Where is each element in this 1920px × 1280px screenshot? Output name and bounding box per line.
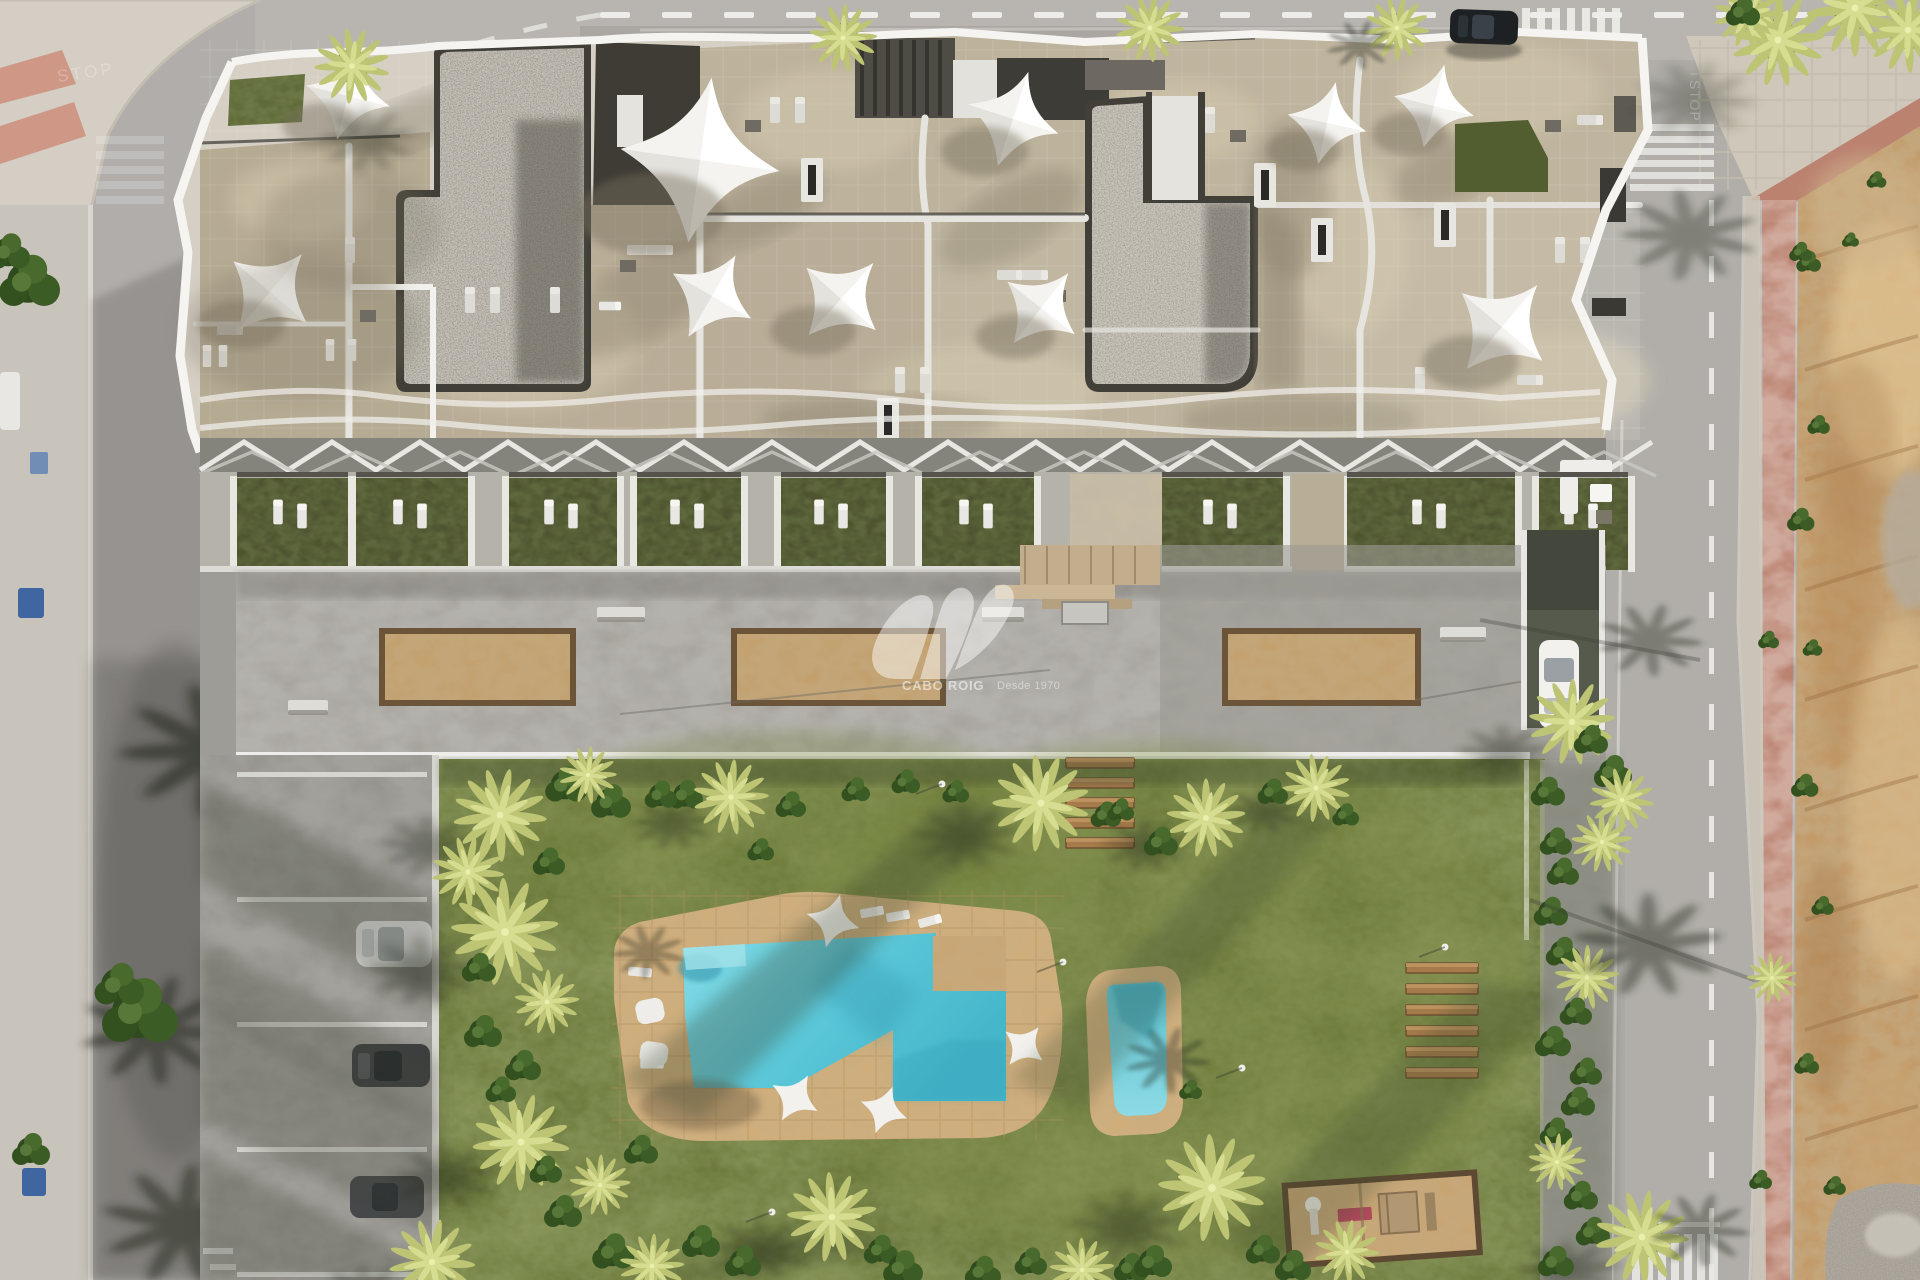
svg-text:CABO ROIG: CABO ROIG — [902, 678, 984, 693]
svg-text:Desde 1970: Desde 1970 — [997, 680, 1060, 692]
